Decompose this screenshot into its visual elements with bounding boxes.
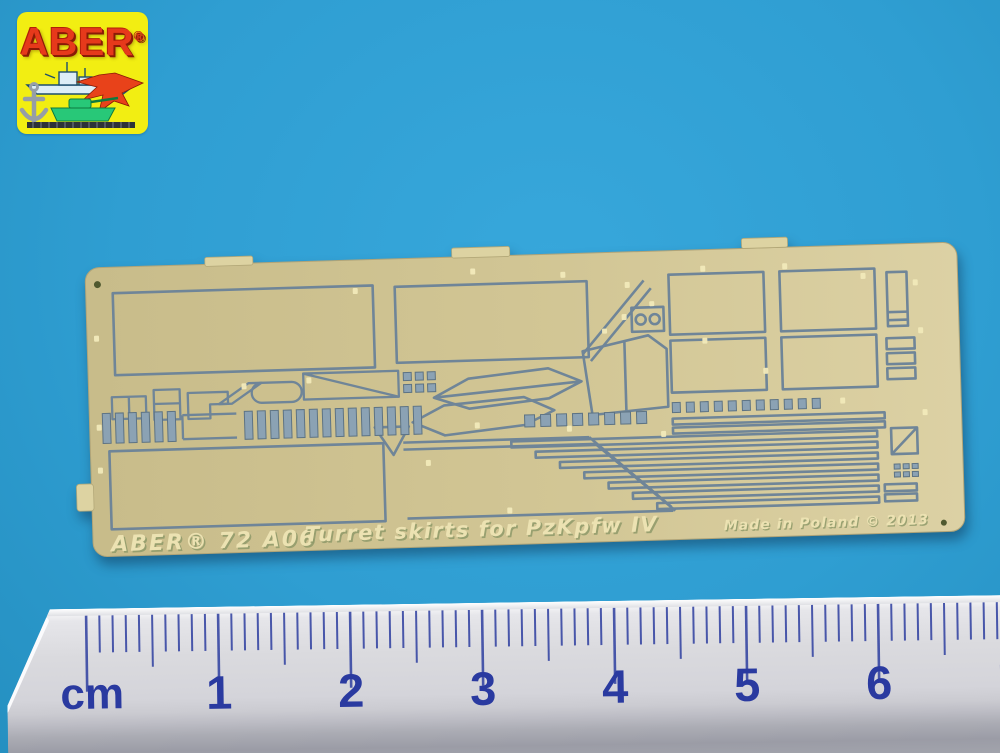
ruler-number-1: 1: [206, 669, 233, 716]
ruler: cm 1234567: [0, 594, 1000, 753]
ruler-number-5: 5: [734, 661, 761, 708]
ruler-number-6: 6: [866, 659, 893, 706]
ruler-number-2: 2: [338, 667, 365, 714]
photo-scene: ABER®: [0, 0, 1000, 753]
ruler-tick-marks: [0, 601, 1000, 701]
ruler-unit-label: cm: [55, 672, 130, 717]
ruler-number-4: 4: [602, 663, 629, 710]
ruler-number-3: 3: [470, 665, 497, 712]
